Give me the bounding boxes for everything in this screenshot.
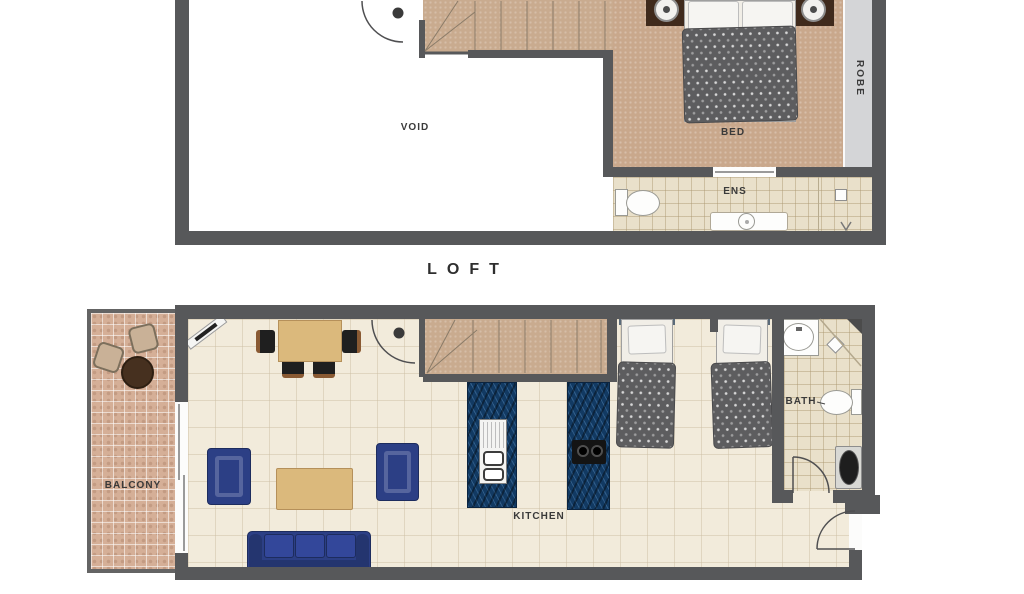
- dining-chair: [342, 330, 361, 353]
- kitchen-label: KITCHEN: [501, 512, 577, 522]
- wall: [833, 490, 862, 503]
- balcony-table: [121, 356, 154, 389]
- basin-tap-icon: [796, 327, 802, 331]
- wall: [175, 305, 875, 319]
- burner-icon: [577, 445, 589, 457]
- armchair-cushion: [215, 456, 243, 497]
- wall: [175, 567, 862, 580]
- floor-plan-canvas: ROBE VOID BED ENS: [0, 0, 1024, 594]
- single-bed-duvet: [711, 361, 774, 449]
- wall: [419, 319, 425, 377]
- armchair: [207, 448, 251, 505]
- entry-door-opening: [849, 514, 862, 550]
- wall: [772, 490, 793, 503]
- wall: [710, 319, 718, 332]
- bath-label: BATH: [782, 397, 820, 407]
- door-panel: [183, 475, 185, 551]
- washer-drum: [839, 450, 859, 485]
- armchair: [376, 443, 419, 501]
- dining-chair: [256, 330, 275, 353]
- balcony-sliding-door: [175, 402, 188, 553]
- coffee-table: [276, 468, 353, 510]
- dining-table: [278, 320, 342, 362]
- sink-bowl: [483, 451, 504, 466]
- door-panel: [178, 404, 180, 480]
- armchair-cushion: [384, 451, 411, 493]
- bed-pillow: [628, 324, 667, 354]
- bath-basin-unit: [778, 319, 819, 356]
- balcony-label: BALCONY: [93, 481, 173, 491]
- wall: [175, 319, 188, 402]
- wall: [862, 305, 875, 497]
- lower-staircase: [423, 319, 613, 374]
- cooktop: [572, 440, 606, 464]
- wall: [423, 374, 617, 382]
- sofa-cushion: [326, 534, 356, 558]
- wall: [849, 550, 862, 580]
- sink-bowl: [483, 468, 504, 481]
- sink-drainer: [483, 422, 504, 448]
- washing-machine: [835, 446, 862, 489]
- sofa-cushion: [264, 534, 294, 558]
- lower-plan: BALCONY: [0, 0, 1024, 594]
- burner-icon: [591, 445, 603, 457]
- bed-pillow: [723, 324, 762, 354]
- bath-toilet-bowl: [820, 390, 853, 415]
- kitchen-sink: [479, 419, 507, 484]
- wall: [607, 305, 617, 382]
- wall: [772, 305, 784, 503]
- sofa-cushion: [295, 534, 325, 558]
- single-bed-duvet: [616, 361, 676, 448]
